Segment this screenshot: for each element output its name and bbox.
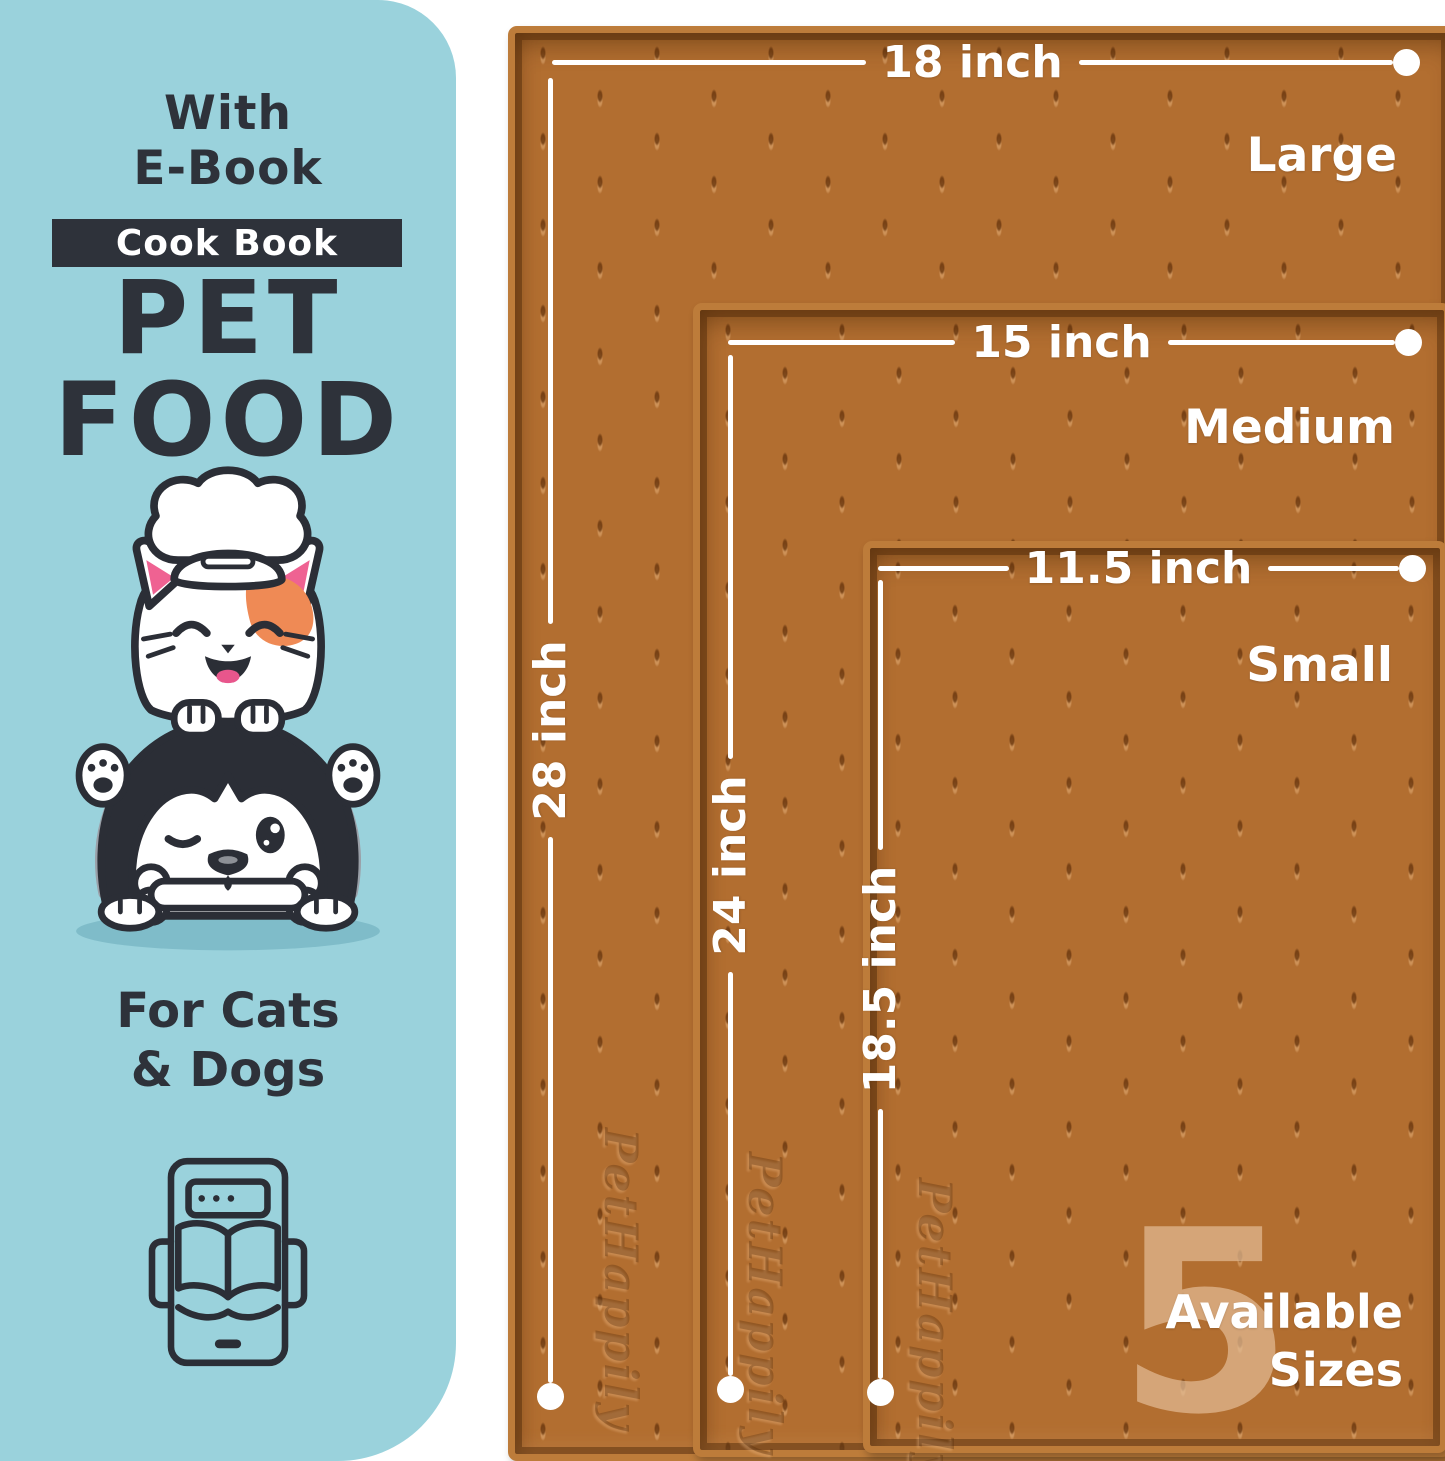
dimension-endpoint-dot [717, 1376, 744, 1403]
size-name-small: Small [1246, 638, 1393, 693]
headline-line2: E-Book [0, 141, 456, 196]
title-line2: FOOD [0, 370, 456, 472]
ebook-headline: With E-Book [0, 86, 456, 197]
available-sizes-line2: Sizes [1166, 1342, 1403, 1400]
brand-emboss-large: PetHappily [594, 1128, 648, 1431]
height-label-small: 18.5 inch [855, 866, 906, 1094]
height-label-large: 28 inch [525, 640, 576, 820]
width-dimension-large: 18 inch [552, 38, 1420, 86]
dimension-line [878, 566, 1009, 571]
dimension-endpoint-dot [537, 1383, 564, 1410]
dimension-line [1079, 60, 1393, 65]
width-dimension-small: 11.5 inch [878, 544, 1426, 592]
size-name-large: Large [1247, 128, 1397, 183]
width-label-small: 11.5 inch [1025, 543, 1253, 594]
headline-line1: With [0, 86, 456, 141]
height-label-medium: 24 inch [705, 775, 756, 955]
ebook-tablet-icon [133, 1152, 323, 1372]
dimension-line [1168, 340, 1395, 345]
dimension-line [1268, 566, 1399, 571]
pet-food-title: PET FOOD [0, 268, 456, 472]
dimension-endpoint-dot [1395, 329, 1422, 356]
dimension-line [548, 78, 553, 624]
dimension-endpoint-dot [1399, 555, 1426, 582]
height-dimension-large: 28 inch [526, 78, 574, 1410]
width-label-medium: 15 inch [971, 317, 1151, 368]
dimension-endpoint-dot [1393, 49, 1420, 76]
brand-emboss-small: PetHappily [908, 1178, 962, 1461]
audience-line1: For Cats [0, 982, 456, 1041]
dimension-line [878, 1109, 883, 1379]
height-dimension-medium: 24 inch [706, 355, 754, 1403]
available-sizes-line1: Available [1166, 1284, 1403, 1342]
dimension-line [878, 580, 883, 850]
size-name-medium: Medium [1184, 400, 1395, 455]
dimension-endpoint-dot [867, 1379, 894, 1406]
dimension-line [728, 972, 733, 1376]
dimension-line [548, 837, 553, 1383]
width-label-large: 18 inch [882, 37, 1062, 88]
title-line1: PET [0, 268, 456, 370]
left-info-panel: With E-Book Cook Book PET FOOD [0, 0, 456, 1461]
dimension-line [728, 355, 733, 759]
height-dimension-small: 18.5 inch [856, 580, 904, 1406]
width-dimension-medium: 15 inch [728, 318, 1422, 366]
audience-text: For Cats & Dogs [0, 982, 456, 1099]
audience-line2: & Dogs [0, 1041, 456, 1100]
cat-dog-chef-illustration [55, 462, 401, 962]
dimension-line [552, 60, 866, 65]
dimension-line [728, 340, 955, 345]
available-sizes-label: Available Sizes [1166, 1284, 1403, 1399]
cook-book-badge-label: Cook Book [116, 223, 338, 264]
product-infographic: With E-Book Cook Book PET FOOD [0, 0, 1445, 1461]
